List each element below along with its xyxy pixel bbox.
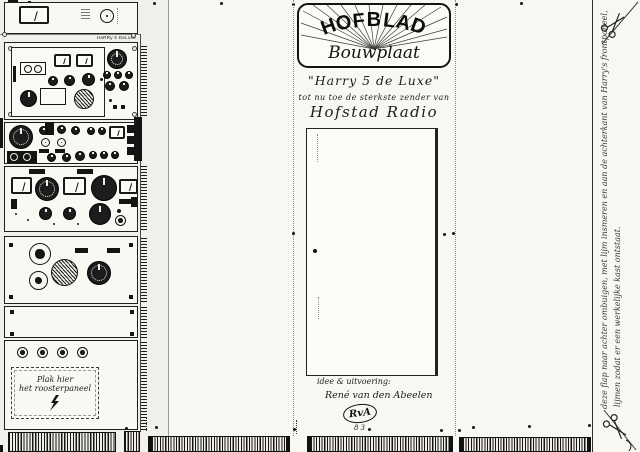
meter — [76, 54, 93, 67]
screw-dot — [27, 219, 29, 221]
registration-dot — [528, 425, 531, 428]
registration-dot — [458, 429, 461, 432]
knob — [29, 243, 51, 265]
wheel-knob — [35, 177, 59, 201]
screw — [129, 295, 133, 299]
front-panel-section — [4, 236, 138, 304]
label-bar — [107, 248, 120, 253]
knob — [100, 151, 108, 159]
meter — [63, 177, 86, 195]
grille-strip — [8, 432, 116, 452]
fold-flap — [141, 46, 147, 116]
lightning-bolt-icon — [50, 395, 60, 412]
author-name: René van den Abeelen — [325, 390, 433, 401]
meter — [54, 54, 71, 67]
knob — [63, 207, 76, 220]
front-panel-section: Plak hier het roosterpaneel — [4, 340, 138, 430]
toggle-switch — [131, 197, 137, 207]
knob — [20, 90, 37, 107]
knob — [105, 81, 115, 91]
cut-line — [592, 0, 593, 452]
screw — [9, 295, 13, 299]
indicator-lamp — [23, 153, 31, 161]
fold-mark — [296, 420, 298, 434]
credits-label: idee & uitvoering: — [317, 377, 391, 386]
knob — [74, 89, 94, 109]
fold-mark — [317, 134, 318, 162]
scan-edge-mark — [0, 118, 3, 148]
screw — [9, 243, 13, 247]
screw — [129, 243, 133, 247]
screw — [2, 32, 7, 37]
knob — [71, 126, 80, 135]
bottom-strip — [124, 431, 140, 452]
registration-dot — [125, 427, 128, 430]
margin-note: deze flap naar achter ombuigen, met lijm… — [599, 37, 624, 409]
dial-pointer — [24, 65, 32, 73]
bottom-strip — [148, 436, 290, 452]
margin-note-line1: deze flap naar achter ombuigen, met lijm… — [599, 37, 612, 409]
registration-dot — [220, 2, 223, 5]
brand-title: HOFBLAD — [299, 12, 449, 35]
knob — [39, 207, 52, 220]
model-label: HaRRy 5 DeLuxe — [88, 35, 136, 40]
registration-dot — [588, 424, 591, 427]
knob — [125, 71, 133, 79]
screw — [132, 46, 137, 51]
knob — [89, 203, 111, 225]
screw-dot — [77, 223, 79, 225]
screw-dot — [53, 223, 55, 225]
product-title: Bouwplaat — [299, 43, 449, 63]
name-plate — [40, 88, 66, 105]
switch — [121, 105, 125, 109]
page-fold-line — [168, 0, 169, 452]
monogram-logo: RvA — [342, 402, 378, 425]
knob — [119, 81, 129, 91]
meter — [19, 6, 49, 24]
knob — [29, 271, 48, 290]
registration-dot — [155, 426, 158, 429]
clock-dial — [57, 138, 66, 147]
tuning-dial — [9, 125, 33, 149]
jack-socket — [115, 215, 126, 226]
washer — [17, 347, 28, 358]
knob — [89, 151, 97, 159]
paste-note-line1: Plak hier — [12, 375, 98, 384]
registration-dot — [520, 2, 523, 5]
indicator-box — [7, 151, 37, 163]
meter — [11, 177, 32, 194]
tiny-scale-labels — [81, 9, 90, 19]
registration-dot — [293, 428, 296, 431]
registration-dot — [472, 426, 475, 429]
knob — [62, 153, 71, 162]
front-panel-section — [4, 2, 138, 34]
front-panel-section — [4, 122, 138, 164]
washer — [77, 347, 88, 358]
knob — [57, 125, 66, 134]
clock-dial — [41, 138, 50, 147]
label-bar — [55, 149, 65, 153]
front-panel-section — [4, 306, 138, 338]
cut-line — [455, 0, 456, 436]
screw — [130, 332, 134, 336]
label-bar — [39, 149, 49, 153]
knob — [48, 76, 58, 86]
indicator-lamp — [10, 153, 18, 161]
registration-dot — [452, 232, 455, 235]
fold-flap — [141, 238, 147, 302]
knob — [111, 151, 119, 159]
label-bar — [75, 248, 88, 253]
toggle-switch — [11, 199, 17, 209]
margin-note-line2: lijmen zodat er een werkelijke kast onts… — [612, 37, 625, 407]
registration-dot — [153, 2, 156, 5]
knob — [114, 71, 122, 79]
knob — [87, 261, 111, 285]
washer — [37, 347, 48, 358]
registration-dot — [292, 232, 295, 235]
ink-dot — [313, 249, 317, 253]
dial-window — [20, 62, 46, 75]
tuning-dial — [107, 49, 127, 69]
cut-line — [293, 0, 294, 436]
knob — [39, 126, 48, 135]
pilot-light — [109, 99, 112, 102]
title-card: HOFBLAD Bouwplaat — [297, 3, 451, 68]
switch — [113, 105, 117, 109]
knob — [100, 9, 114, 23]
label-bar — [77, 169, 93, 174]
knob — [47, 153, 56, 162]
bottom-strip — [307, 436, 453, 452]
year-label: 83 — [354, 424, 367, 432]
display-window — [306, 128, 438, 376]
pilot-light — [117, 209, 121, 213]
dial-pointer — [34, 65, 42, 73]
bottom-strip — [459, 437, 591, 452]
front-panel-section — [4, 42, 138, 120]
screw — [130, 310, 134, 314]
fold-mark — [318, 297, 319, 319]
sub-panel — [11, 47, 105, 117]
registration-dot — [443, 233, 446, 236]
knob — [87, 127, 95, 135]
glue-flap — [134, 117, 142, 161]
fold-flap — [141, 306, 147, 338]
screw — [10, 310, 14, 314]
registration-mark — [0, 445, 3, 452]
label-bar — [13, 66, 16, 82]
front-panel-section — [4, 166, 138, 232]
fold-mark — [146, 417, 148, 431]
bouwplaat-scan: HaRRy 5 DeLuxe — [0, 0, 640, 452]
model-name: "Harry 5 de Luxe" — [297, 73, 451, 88]
paste-note-line2: het roosterpaneel — [12, 384, 98, 393]
registration-dot — [368, 428, 371, 431]
label-bar — [29, 169, 45, 174]
registration-dot — [440, 429, 443, 432]
fold-flap — [141, 166, 147, 230]
pilot-light — [100, 78, 103, 81]
screw — [10, 332, 14, 336]
knob — [64, 75, 75, 86]
tick-marks — [117, 8, 118, 24]
knob — [98, 127, 106, 135]
tagline: tot nu toe de sterkste zender van — [290, 93, 458, 102]
knob — [51, 259, 78, 286]
paste-note-box: Plak hier het roosterpaneel — [11, 367, 99, 419]
knob — [82, 73, 95, 86]
knob — [91, 175, 117, 201]
meter — [109, 126, 125, 139]
knob — [103, 71, 111, 79]
screw-dot — [15, 213, 17, 215]
station-name: Hofstad Radio — [297, 103, 451, 121]
scissors-icon — [592, 404, 640, 452]
meter — [119, 179, 138, 194]
knob — [75, 151, 85, 161]
washer — [57, 347, 68, 358]
